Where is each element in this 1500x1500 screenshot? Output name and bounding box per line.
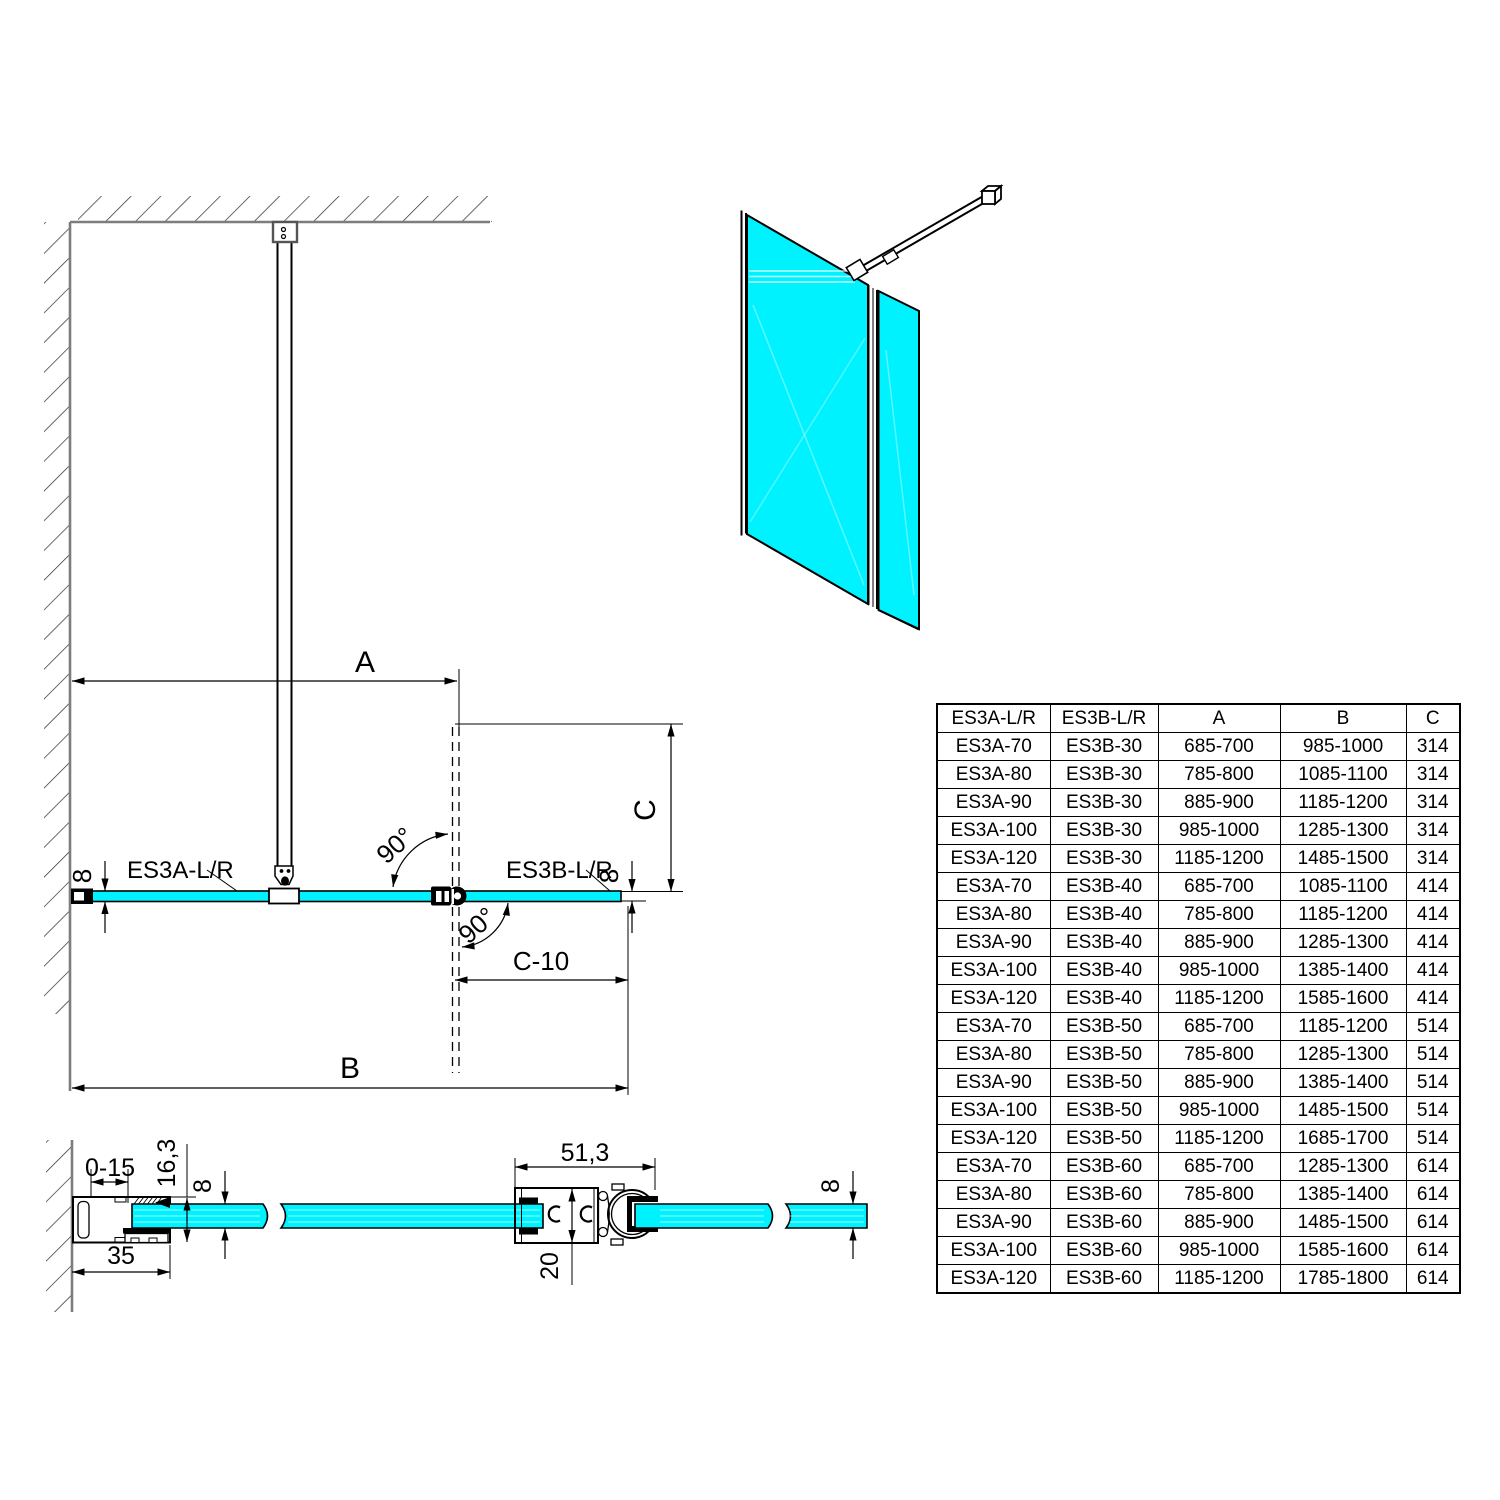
dim-0-15-label: 0-15 — [85, 1154, 135, 1182]
table-cell: 985-1000 — [1158, 1097, 1280, 1125]
table-cell: 885-900 — [1158, 1209, 1280, 1237]
table-row: ES3A-70ES3B-40685-7001085-1100414 — [937, 873, 1460, 901]
bottom-gasket — [123, 1228, 170, 1234]
table-cell: 1585-1600 — [1280, 985, 1406, 1013]
table-cell: ES3B-40 — [1050, 901, 1158, 929]
dim-20-label: 20 — [536, 1252, 564, 1280]
table-cell: 314 — [1406, 817, 1460, 845]
table-cell: 1085-1100 — [1280, 761, 1406, 789]
dimension-b: B — [72, 906, 628, 1095]
table-cell: 414 — [1406, 901, 1460, 929]
dim-35-label: 35 — [107, 1242, 135, 1270]
angle-label: 90° — [370, 821, 419, 870]
table-cell: ES3A-100 — [937, 957, 1050, 985]
table-cell: ES3A-80 — [937, 901, 1050, 929]
table-cell: 785-800 — [1158, 1181, 1280, 1209]
swing-arc-upper: 90° — [370, 821, 448, 887]
table-cell: 1385-1400 — [1280, 1069, 1406, 1097]
table-cell: 1285-1300 — [1280, 1041, 1406, 1069]
dim-a-label: A — [355, 646, 375, 679]
table-cell: 414 — [1406, 873, 1460, 901]
iso-support-bar — [846, 186, 1001, 281]
table-header-cell: A — [1158, 704, 1280, 733]
table-cell: 1685-1700 — [1280, 1125, 1406, 1153]
table-cell: 985-1000 — [1158, 1237, 1280, 1265]
table-cell: 614 — [1406, 1209, 1460, 1237]
table-header-cell: ES3A-L/R — [937, 704, 1050, 733]
table-cell: 1585-1600 — [1280, 1237, 1406, 1265]
table-row: ES3A-90ES3B-40885-9001285-1300414 — [937, 929, 1460, 957]
table-cell: 1785-1800 — [1280, 1265, 1406, 1294]
glass-panel-a-plan — [92, 891, 432, 902]
size-table-grid: ES3A-L/RES3B-L/RABC ES3A-70ES3B-30685-70… — [936, 703, 1461, 1294]
table-cell: 514 — [1406, 1041, 1460, 1069]
table-cell: ES3A-80 — [937, 1041, 1050, 1069]
iso-wall-mount — [982, 186, 1001, 204]
table-cell: 314 — [1406, 789, 1460, 817]
table-row: ES3A-120ES3B-601185-12001785-1800614 — [937, 1265, 1460, 1294]
table-cell: ES3B-30 — [1050, 845, 1158, 873]
glass-panel-b-plan — [463, 891, 621, 902]
table-cell: ES3A-120 — [937, 1265, 1050, 1294]
table-row: ES3A-100ES3B-30985-10001285-1300314 — [937, 817, 1460, 845]
table-header-cell: B — [1280, 704, 1406, 733]
table-row: ES3A-90ES3B-60885-9001485-1500614 — [937, 1209, 1460, 1237]
table-row: ES3A-120ES3B-501185-12001685-1700514 — [937, 1125, 1460, 1153]
table-cell: 614 — [1406, 1181, 1460, 1209]
table-cell: 1185-1200 — [1158, 985, 1280, 1013]
table-cell: ES3B-60 — [1050, 1181, 1158, 1209]
wall-profile-section: 0-15 16,3 8 35 — [46, 1139, 268, 1312]
table-row: ES3A-70ES3B-30685-700985-1000314 — [937, 733, 1460, 761]
table-row: ES3A-120ES3B-301185-12001485-1500314 — [937, 845, 1460, 873]
size-table: ES3A-L/RES3B-L/RABC ES3A-70ES3B-30685-70… — [936, 703, 1459, 1291]
table-cell: 1385-1400 — [1280, 957, 1406, 985]
dimension-35: 35 — [72, 1242, 170, 1279]
table-row: ES3A-90ES3B-30885-9001185-1200314 — [937, 789, 1460, 817]
table-cell: 314 — [1406, 733, 1460, 761]
table-cell: ES3A-70 — [937, 733, 1050, 761]
dimension-0-15: 0-15 — [85, 1154, 135, 1203]
table-cell: ES3B-60 — [1050, 1237, 1158, 1265]
support-bar-plan — [273, 222, 297, 866]
table-row: ES3A-80ES3B-40785-8001185-1200414 — [937, 901, 1460, 929]
dimension-51-3: 51,3 — [515, 1139, 655, 1190]
hinge-profile-section: 51,3 20 8 — [281, 1139, 867, 1285]
table-cell: 1185-1200 — [1158, 1265, 1280, 1294]
table-cell: 985-1000 — [1158, 817, 1280, 845]
table-cell: 614 — [1406, 1265, 1460, 1294]
table-cell: 1485-1500 — [1280, 845, 1406, 873]
table-cell: ES3B-40 — [1050, 957, 1158, 985]
dim-8-label: 8 — [189, 1179, 217, 1193]
table-cell: ES3B-60 — [1050, 1153, 1158, 1181]
table-cell: ES3A-70 — [937, 1153, 1050, 1181]
table-cell: ES3A-120 — [937, 985, 1050, 1013]
table-cell: 1185-1200 — [1280, 789, 1406, 817]
table-cell: 1285-1300 — [1280, 817, 1406, 845]
table-cell: 885-900 — [1158, 1069, 1280, 1097]
table-cell: 414 — [1406, 929, 1460, 957]
table-cell: 414 — [1406, 985, 1460, 1013]
dimension-c10: C-10 — [455, 946, 628, 980]
table-row: ES3A-100ES3B-40985-10001385-1400414 — [937, 957, 1460, 985]
iso-view — [742, 186, 1002, 630]
table-cell: 985-1000 — [1280, 733, 1406, 761]
table-cell: ES3B-30 — [1050, 789, 1158, 817]
table-cell: 1485-1500 — [1280, 1209, 1406, 1237]
swing-arc-lower: 90° — [452, 901, 508, 950]
table-cell: ES3B-60 — [1050, 1209, 1158, 1237]
dim-8-label: 8 — [67, 869, 97, 883]
table-header-cell: ES3B-L/R — [1050, 704, 1158, 733]
table-cell: 1185-1200 — [1158, 1125, 1280, 1153]
table-cell: ES3A-70 — [937, 873, 1050, 901]
table-cell: ES3B-30 — [1050, 817, 1158, 845]
table-row: ES3A-80ES3B-30785-8001085-1100314 — [937, 761, 1460, 789]
table-cell: ES3B-60 — [1050, 1265, 1158, 1294]
table-cell: ES3A-80 — [937, 1181, 1050, 1209]
dim-16-3-label: 16,3 — [153, 1139, 181, 1188]
table-cell: 1485-1500 — [1280, 1097, 1406, 1125]
table-cell: ES3A-100 — [937, 1097, 1050, 1125]
table-cell: ES3B-30 — [1050, 733, 1158, 761]
table-cell: ES3B-50 — [1050, 1125, 1158, 1153]
table-header-row: ES3A-L/RES3B-L/RABC — [937, 704, 1460, 733]
table-cell: ES3A-100 — [937, 817, 1050, 845]
table-header-cell: C — [1406, 704, 1460, 733]
table-row: ES3A-70ES3B-50685-7001185-1200514 — [937, 1013, 1460, 1041]
table-cell: 985-1000 — [1158, 957, 1280, 985]
table-cell: 414 — [1406, 957, 1460, 985]
panel-a-label: ES3A-L/R — [127, 857, 234, 884]
table-cell: 685-700 — [1158, 1013, 1280, 1041]
table-row: ES3A-80ES3B-60785-8001385-1400614 — [937, 1181, 1460, 1209]
table-cell: ES3A-70 — [937, 1013, 1050, 1041]
table-cell: 1285-1300 — [1280, 929, 1406, 957]
table-cell: 1185-1200 — [1280, 1013, 1406, 1041]
table-cell: 785-800 — [1158, 901, 1280, 929]
angle-label: 90° — [452, 901, 501, 950]
dim-c-label: C — [629, 799, 662, 821]
table-cell: ES3A-120 — [937, 845, 1050, 873]
table-row: ES3A-100ES3B-60985-10001585-1600614 — [937, 1237, 1460, 1265]
hinge-clamp-plan — [431, 887, 467, 906]
left-wall-hatch — [44, 222, 70, 1014]
table-cell: 885-900 — [1158, 789, 1280, 817]
table-cell: ES3A-100 — [937, 1237, 1050, 1265]
table-cell: ES3A-120 — [937, 1125, 1050, 1153]
table-cell: 1185-1200 — [1280, 901, 1406, 929]
table-cell: 514 — [1406, 1097, 1460, 1125]
table-cell: ES3B-40 — [1050, 873, 1158, 901]
table-cell: ES3B-50 — [1050, 1097, 1158, 1125]
table-cell: 1185-1200 — [1158, 845, 1280, 873]
dim-8-label: 8 — [817, 1179, 845, 1193]
wall-hatch — [46, 1140, 72, 1312]
plan-view: A C C-10 B 8 8 — [44, 196, 683, 1095]
dim-b-label: B — [340, 1052, 360, 1085]
size-table-body: ES3A-70ES3B-30685-700985-1000314ES3A-80E… — [937, 733, 1460, 1294]
table-row: ES3A-100ES3B-50985-10001485-1500514 — [937, 1097, 1460, 1125]
table-cell: ES3B-50 — [1050, 1069, 1158, 1097]
table-row: ES3A-80ES3B-50785-8001285-1300514 — [937, 1041, 1460, 1069]
table-cell: 1385-1400 — [1280, 1181, 1406, 1209]
wall-bracket-plan — [71, 889, 93, 905]
bar-clamp-plan — [269, 866, 299, 904]
table-cell: 514 — [1406, 1069, 1460, 1097]
table-cell: ES3A-90 — [937, 789, 1050, 817]
table-cell: ES3A-90 — [937, 1069, 1050, 1097]
dim-c10-label: C-10 — [513, 946, 569, 976]
table-cell: 1285-1300 — [1280, 1153, 1406, 1181]
table-cell: 885-900 — [1158, 929, 1280, 957]
table-cell: ES3B-50 — [1050, 1013, 1158, 1041]
table-cell: ES3A-80 — [937, 761, 1050, 789]
table-cell: 314 — [1406, 761, 1460, 789]
table-row: ES3A-70ES3B-60685-7001285-1300614 — [937, 1153, 1460, 1181]
dimension-a: A — [72, 646, 457, 681]
table-cell: 514 — [1406, 1013, 1460, 1041]
table-cell: 685-700 — [1158, 733, 1280, 761]
table-cell: ES3B-40 — [1050, 985, 1158, 1013]
table-cell: 685-700 — [1158, 1153, 1280, 1181]
table-cell: 685-700 — [1158, 873, 1280, 901]
table-cell: 1085-1100 — [1280, 873, 1406, 901]
table-cell: 614 — [1406, 1237, 1460, 1265]
ceiling-wall-hatch — [78, 196, 492, 222]
ceiling-bracket — [273, 222, 297, 242]
table-cell: 614 — [1406, 1153, 1460, 1181]
table-cell: 514 — [1406, 1125, 1460, 1153]
table-cell: ES3B-50 — [1050, 1041, 1158, 1069]
table-cell: ES3B-30 — [1050, 761, 1158, 789]
table-cell: ES3A-90 — [937, 1209, 1050, 1237]
table-cell: 785-800 — [1158, 761, 1280, 789]
table-row: ES3A-120ES3B-401185-12001585-1600414 — [937, 985, 1460, 1013]
dim-51-3-label: 51,3 — [561, 1139, 610, 1167]
table-row: ES3A-90ES3B-50885-9001385-1400514 — [937, 1069, 1460, 1097]
table-cell: ES3B-40 — [1050, 929, 1158, 957]
table-cell: ES3A-90 — [937, 929, 1050, 957]
table-cell: 314 — [1406, 845, 1460, 873]
table-cell: 785-800 — [1158, 1041, 1280, 1069]
